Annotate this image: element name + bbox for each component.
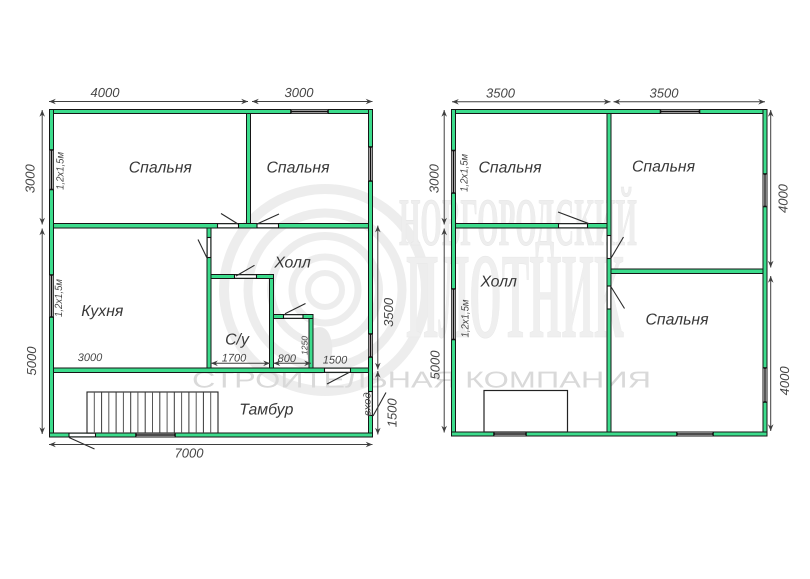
svg-text:7000: 7000 [175,446,205,461]
svg-text:4000: 4000 [776,183,791,213]
svg-text:Спальня: Спальня [129,160,193,177]
svg-text:1700: 1700 [222,353,247,365]
svg-text:3000: 3000 [426,163,441,193]
svg-text:5000: 5000 [24,346,39,376]
svg-text:Холл: Холл [479,274,517,291]
svg-text:3000: 3000 [22,163,37,193]
svg-text:Спальня: Спальня [266,160,330,177]
svg-text:1,2х1,5м: 1,2х1,5м [459,300,471,338]
svg-text:Холл: Холл [273,254,311,271]
svg-text:1,2х1,5м: 1,2х1,5м [458,154,470,192]
svg-text:4000: 4000 [91,85,121,100]
svg-text:3500: 3500 [650,86,680,101]
svg-text:800: 800 [278,353,297,365]
svg-text:вход: вход [363,392,374,417]
svg-text:3000: 3000 [285,85,315,100]
svg-text:3500: 3500 [486,86,516,101]
svg-text:5000: 5000 [427,350,442,380]
svg-text:Спальня: Спальня [632,159,696,176]
svg-text:4000: 4000 [777,366,792,396]
svg-text:Кухня: Кухня [81,303,124,320]
svg-text:1,2х1,5м: 1,2х1,5м [54,152,66,190]
svg-text:3000: 3000 [78,352,103,364]
svg-text:3500: 3500 [381,297,396,327]
svg-text:1500: 1500 [385,398,400,428]
svg-text:Тамбур: Тамбур [239,402,293,419]
svg-text:С/у: С/у [225,332,250,349]
svg-text:1,2х1,5м: 1,2х1,5м [53,279,65,317]
svg-text:1250: 1250 [299,336,309,355]
svg-text:Спальня: Спальня [645,312,709,329]
svg-text:Спальня: Спальня [478,160,542,177]
svg-text:ПЛОТНИК: ПЛОТНИК [406,229,624,364]
svg-text:1500: 1500 [323,355,348,367]
